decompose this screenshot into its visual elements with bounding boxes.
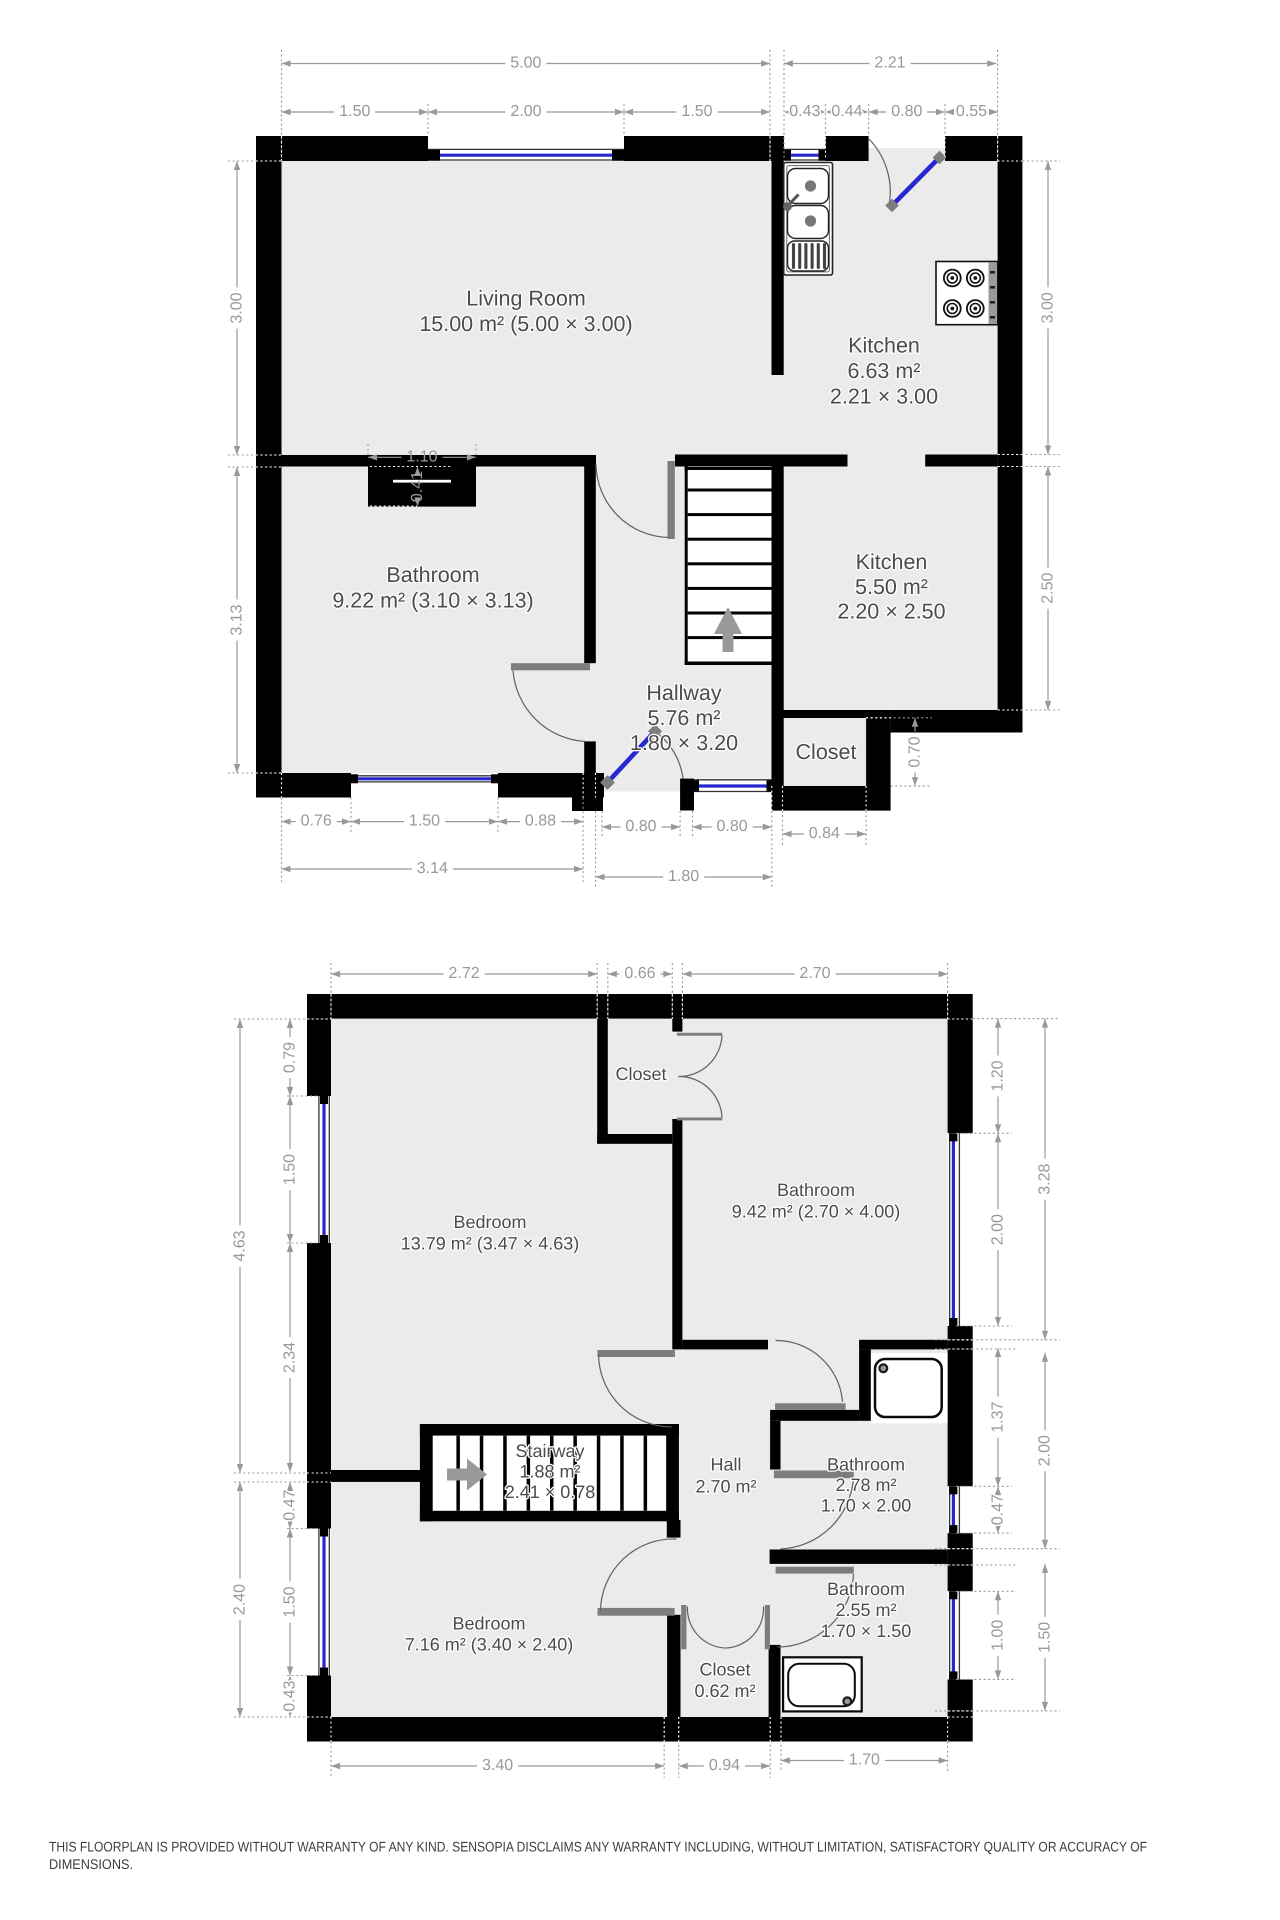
svg-text:13.79 m² (3.47 × 4.63): 13.79 m² (3.47 × 4.63) bbox=[401, 1234, 580, 1254]
svg-text:Bathroom: Bathroom bbox=[777, 1180, 855, 1200]
svg-text:0.41: 0.41 bbox=[409, 471, 426, 502]
svg-text:Bathroom: Bathroom bbox=[827, 1579, 905, 1599]
svg-text:1.70: 1.70 bbox=[849, 1752, 880, 1769]
svg-text:1.80 × 3.20: 1.80 × 3.20 bbox=[630, 731, 738, 755]
svg-text:0.80: 0.80 bbox=[891, 103, 922, 120]
svg-text:6.63 m²: 6.63 m² bbox=[848, 359, 921, 383]
svg-text:0.44: 0.44 bbox=[831, 103, 862, 120]
svg-text:Kitchen: Kitchen bbox=[856, 550, 928, 574]
svg-text:1.50: 1.50 bbox=[409, 813, 440, 830]
svg-text:Bedroom: Bedroom bbox=[453, 1212, 526, 1232]
svg-text:1.88 m²: 1.88 m² bbox=[519, 1462, 580, 1482]
svg-text:1.50: 1.50 bbox=[282, 1154, 299, 1185]
svg-text:2.34: 2.34 bbox=[282, 1342, 299, 1373]
svg-text:1.50: 1.50 bbox=[339, 103, 370, 120]
svg-text:2.41 × 0.78: 2.41 × 0.78 bbox=[505, 1482, 596, 1502]
svg-text:0.84: 0.84 bbox=[809, 825, 840, 842]
svg-text:0.55: 0.55 bbox=[956, 103, 987, 120]
svg-text:0.43: 0.43 bbox=[282, 1681, 299, 1712]
svg-text:Living Room: Living Room bbox=[466, 287, 586, 311]
svg-text:0.43: 0.43 bbox=[789, 103, 820, 120]
svg-text:Closet: Closet bbox=[615, 1064, 666, 1084]
svg-text:1.50: 1.50 bbox=[282, 1586, 299, 1617]
svg-text:1.20: 1.20 bbox=[990, 1060, 1007, 1091]
svg-text:4.63: 4.63 bbox=[232, 1230, 249, 1261]
svg-text:0.47: 0.47 bbox=[282, 1490, 299, 1521]
svg-text:2.72: 2.72 bbox=[449, 965, 480, 982]
svg-text:Closet: Closet bbox=[699, 1660, 750, 1680]
svg-text:1.50: 1.50 bbox=[1037, 1622, 1054, 1653]
svg-text:Hallway: Hallway bbox=[646, 681, 722, 705]
svg-text:2.00: 2.00 bbox=[510, 103, 541, 120]
svg-text:5.50 m²: 5.50 m² bbox=[855, 575, 928, 599]
svg-text:Kitchen: Kitchen bbox=[848, 334, 920, 358]
svg-text:2.40: 2.40 bbox=[232, 1584, 249, 1615]
svg-text:2.21 × 3.00: 2.21 × 3.00 bbox=[830, 385, 938, 409]
svg-text:1.80: 1.80 bbox=[668, 868, 699, 885]
svg-text:15.00 m² (5.00 × 3.00): 15.00 m² (5.00 × 3.00) bbox=[419, 312, 632, 336]
svg-text:3.00: 3.00 bbox=[1040, 292, 1057, 323]
svg-text:0.94: 0.94 bbox=[709, 1757, 740, 1774]
svg-text:7.16 m² (3.40 × 2.40): 7.16 m² (3.40 × 2.40) bbox=[405, 1635, 574, 1655]
svg-text:0.62 m²: 0.62 m² bbox=[694, 1681, 755, 1701]
svg-text:9.22 m² (3.10 × 3.13): 9.22 m² (3.10 × 3.13) bbox=[332, 589, 533, 613]
svg-text:0.66: 0.66 bbox=[624, 965, 655, 982]
svg-text:0.88: 0.88 bbox=[525, 813, 556, 830]
svg-text:Closet: Closet bbox=[796, 740, 857, 764]
svg-text:Stairway: Stairway bbox=[515, 1441, 584, 1461]
svg-text:3.40: 3.40 bbox=[482, 1757, 513, 1774]
svg-text:5.76 m²: 5.76 m² bbox=[648, 706, 721, 730]
svg-text:0.47: 0.47 bbox=[990, 1494, 1007, 1525]
svg-text:3.00: 3.00 bbox=[229, 292, 246, 323]
svg-text:3.14: 3.14 bbox=[417, 860, 448, 877]
svg-text:3.13: 3.13 bbox=[229, 604, 246, 635]
svg-text:2.70: 2.70 bbox=[799, 965, 830, 982]
svg-text:2.00: 2.00 bbox=[1037, 1435, 1054, 1466]
svg-text:2.55 m²: 2.55 m² bbox=[835, 1600, 896, 1620]
svg-text:2.78 m²: 2.78 m² bbox=[835, 1475, 896, 1495]
svg-text:2.20 × 2.50: 2.20 × 2.50 bbox=[837, 600, 945, 624]
svg-text:1.00: 1.00 bbox=[990, 1620, 1007, 1651]
svg-text:DIMENSIONS.: DIMENSIONS. bbox=[49, 1856, 133, 1872]
svg-text:0.80: 0.80 bbox=[717, 818, 748, 835]
svg-text:1.70 × 2.00: 1.70 × 2.00 bbox=[821, 1496, 912, 1516]
svg-text:2.21: 2.21 bbox=[874, 55, 905, 72]
svg-text:1.70 × 1.50: 1.70 × 1.50 bbox=[821, 1621, 912, 1641]
svg-text:2.00: 2.00 bbox=[990, 1214, 1007, 1245]
svg-text:THIS FLOORPLAN IS PROVIDED WIT: THIS FLOORPLAN IS PROVIDED WITHOUT WARRA… bbox=[49, 1839, 1147, 1855]
svg-text:Bathroom: Bathroom bbox=[827, 1455, 905, 1475]
svg-text:2.50: 2.50 bbox=[1040, 573, 1057, 604]
svg-text:1.10: 1.10 bbox=[406, 448, 437, 465]
svg-text:3.28: 3.28 bbox=[1037, 1164, 1054, 1195]
svg-text:0.80: 0.80 bbox=[625, 818, 656, 835]
svg-text:5.00: 5.00 bbox=[510, 55, 541, 72]
svg-text:0.70: 0.70 bbox=[907, 736, 924, 767]
svg-text:0.79: 0.79 bbox=[282, 1042, 299, 1073]
svg-text:0.76: 0.76 bbox=[301, 813, 332, 830]
svg-text:1.37: 1.37 bbox=[990, 1402, 1007, 1433]
svg-text:1.50: 1.50 bbox=[681, 103, 712, 120]
svg-text:Bathroom: Bathroom bbox=[386, 563, 479, 587]
svg-text:2.70 m²: 2.70 m² bbox=[695, 1477, 756, 1497]
svg-text:Bedroom: Bedroom bbox=[452, 1614, 525, 1634]
svg-text:Hall: Hall bbox=[710, 1455, 741, 1475]
svg-text:9.42 m² (2.70 × 4.00): 9.42 m² (2.70 × 4.00) bbox=[732, 1202, 901, 1222]
